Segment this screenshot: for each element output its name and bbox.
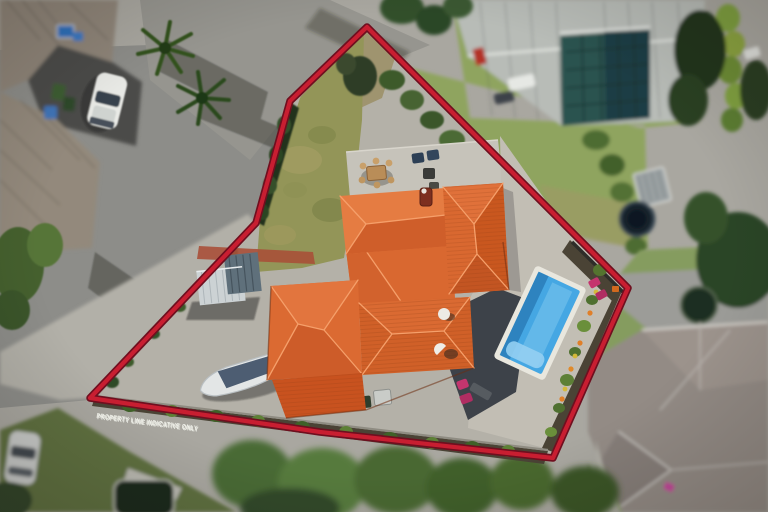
- aerial-photo: PROPERTY LINE INDICATIVE ONLY PROPERTY L…: [0, 0, 768, 512]
- aerial-photo-canvas: PROPERTY LINE INDICATIVE ONLY PROPERTY L…: [0, 0, 768, 512]
- vignette-overlay: [0, 0, 768, 512]
